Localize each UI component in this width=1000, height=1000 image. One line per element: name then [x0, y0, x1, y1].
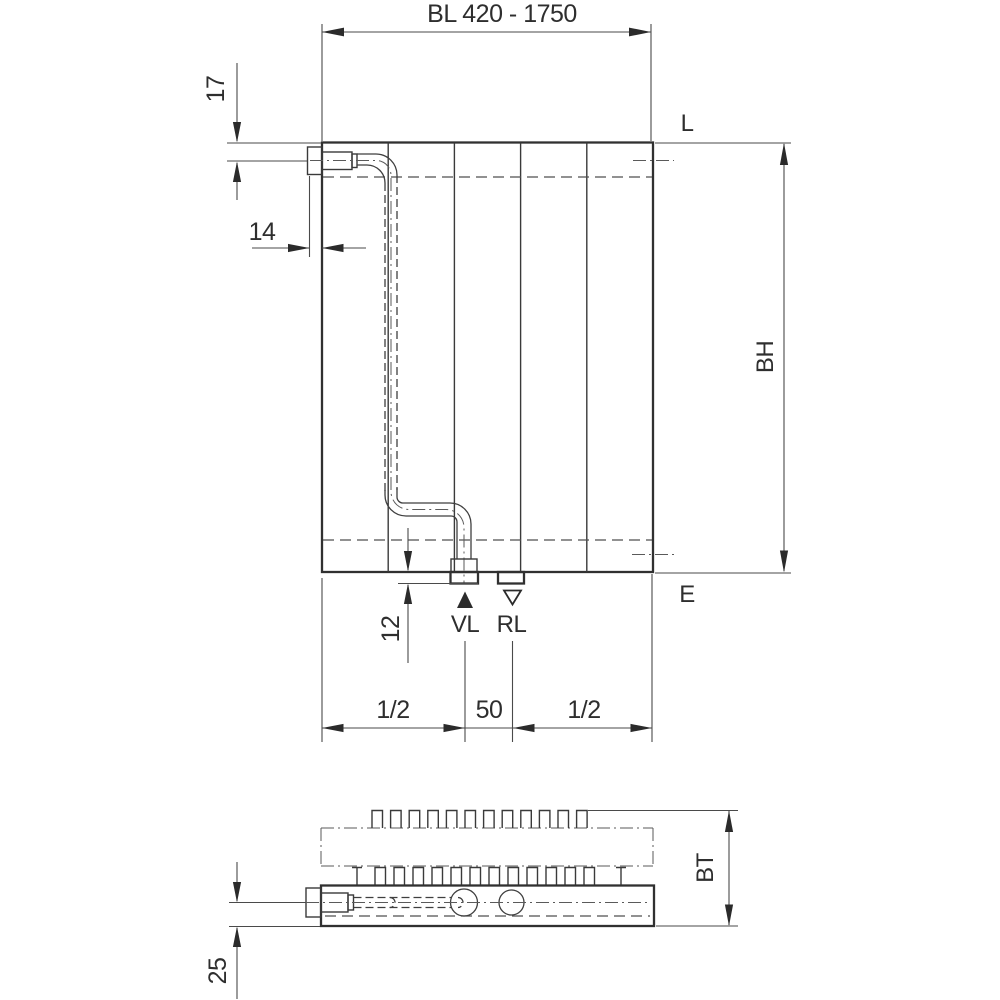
- bottom-arrow-far-left: [322, 724, 344, 732]
- radiator-body-outline: [322, 143, 653, 573]
- dim25-arrow-up: [233, 927, 241, 948]
- supply-label: VL: [451, 611, 480, 638]
- fin-row-top: [372, 811, 587, 829]
- bh-arrow-down: [780, 551, 788, 573]
- flow-markers: VL RL: [451, 591, 527, 639]
- dim14-arrow-right: [288, 244, 310, 252]
- internal-pipe: [310, 154, 471, 583]
- dimension-25: 25: [204, 862, 320, 999]
- return-stub: [498, 572, 524, 584]
- pipe-bend-top-inner: [357, 165, 385, 183]
- top-axis-label: L: [681, 110, 694, 137]
- bt-arrow-down: [725, 905, 733, 927]
- dimension-14: 14: [249, 176, 366, 257]
- dim17-label: 17: [202, 76, 230, 103]
- supply-triangle-icon: [457, 592, 473, 609]
- pipe-centerline: [310, 161, 464, 584]
- dim17-arrow-up: [233, 162, 241, 183]
- front-panel-outline: [321, 886, 654, 927]
- spacing-50-label: 50: [476, 696, 503, 724]
- radiator-technical-drawing: BL 420 - 1750 17 14 BH L E 12 VL: [0, 0, 1000, 1000]
- dim12-arrow-down: [404, 551, 412, 572]
- dim12-arrow-up: [404, 584, 412, 605]
- dim25-label: 25: [204, 958, 232, 985]
- bottom-arrow-vl: [444, 724, 466, 732]
- pipe-s-curve-left: [385, 490, 457, 559]
- return-label: RL: [497, 611, 527, 638]
- half-right-label: 1/2: [567, 696, 600, 724]
- dimension-bottom-row: 1/2 50 1/2: [322, 574, 652, 742]
- bl-arrow-left: [322, 28, 344, 37]
- dim12-label: 12: [377, 616, 405, 643]
- bl-arrow-right: [629, 28, 651, 37]
- bt-label: BT: [692, 852, 719, 883]
- fin-row-bottom: [375, 868, 595, 886]
- dimension-12: 12: [377, 528, 478, 663]
- bottom-view: [306, 811, 654, 927]
- panel-separation-lines: [388, 143, 587, 573]
- bottom-arrow-far-right: [631, 724, 653, 732]
- bottom-arrow-rl: [513, 724, 535, 732]
- front-view: [308, 143, 679, 584]
- drawing-canvas: BL 420 - 1750 17 14 BH L E 12 VL: [0, 0, 1000, 1000]
- bl-dimension-label: BL 420 - 1750: [427, 0, 577, 28]
- bottom-axis-label: E: [679, 581, 695, 608]
- rear-panel-outline: [321, 828, 653, 866]
- bt-arrow-up: [725, 811, 733, 833]
- dim25-arrow-down: [233, 882, 241, 903]
- return-triangle-icon: [504, 591, 521, 605]
- dim14-arrow-left: [322, 244, 344, 252]
- dimension-17: 17: [202, 63, 321, 200]
- dimension-bt: BT: [588, 811, 738, 927]
- bl-extension-lines: [322, 24, 651, 141]
- bh-label: BH: [752, 341, 779, 373]
- bh-arrow-up: [780, 143, 788, 165]
- dim14-label: 14: [249, 218, 276, 246]
- dim17-arrow-down: [233, 122, 241, 143]
- dimension-bl: BL 420 - 1750: [322, 0, 651, 141]
- dimension-bh: BH L E: [655, 110, 791, 608]
- half-left-label: 1/2: [376, 696, 409, 724]
